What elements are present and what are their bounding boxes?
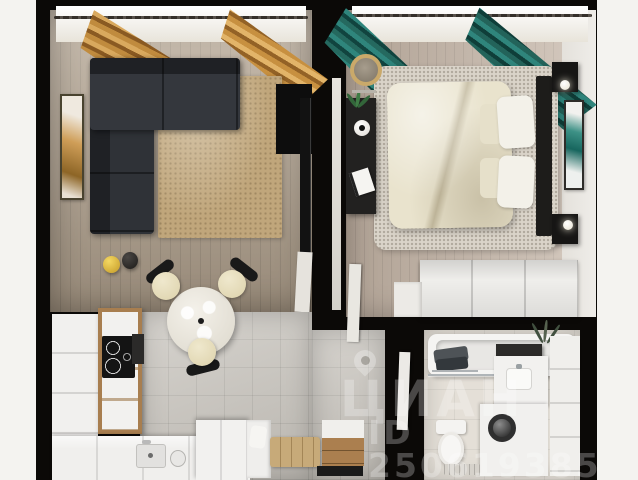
shoe-cabinet-top [322, 420, 364, 438]
right-margin [597, 0, 638, 480]
bathroom-shelf [496, 344, 542, 356]
bedroom-wall-art [564, 100, 584, 190]
bedroom-wardrobe [420, 260, 578, 317]
living-room-door [294, 252, 312, 313]
table-centerpiece [198, 318, 204, 324]
round-mirror [350, 54, 382, 86]
bed-headboard [536, 76, 552, 236]
bed-pillow [497, 155, 536, 209]
kitchen-faucet [142, 440, 151, 444]
oven-front [132, 334, 144, 364]
bathroom-storage-column [550, 336, 580, 476]
washing-machine-door [488, 414, 516, 442]
floor-plan-render: ЦИАН ID 250619385 [0, 0, 638, 480]
hall-bench-pillow [249, 425, 268, 449]
bathroom-door [397, 352, 411, 430]
hallway-storage-box [196, 420, 250, 480]
partition-wall-face [332, 78, 341, 310]
corner-sofa-top-arm [90, 58, 240, 130]
dining-chair [188, 338, 216, 366]
shoe-cabinet [322, 438, 364, 466]
hall-bench-cushion [270, 437, 320, 467]
wall-sconce [560, 80, 570, 90]
wardrobe-step [394, 282, 422, 317]
vanity-faucet [516, 364, 522, 369]
left-margin [0, 0, 36, 480]
laundry-unit [480, 404, 548, 476]
floor-drain [444, 464, 480, 475]
glass-shelf [352, 90, 376, 93]
bed-pillow [496, 95, 536, 149]
dining-chair [218, 270, 246, 298]
apartment-plan [36, 0, 597, 480]
yellow-floor-lamp [103, 256, 120, 273]
kettle [170, 450, 186, 467]
toilet-bowl [438, 432, 464, 466]
black-floor-lamp [122, 252, 138, 269]
wall-sconce [563, 220, 573, 230]
sink-drain [148, 453, 153, 458]
induction-cooktop [102, 336, 135, 378]
bedroom-curtain-rod [348, 14, 592, 17]
vanity-sink [506, 368, 532, 390]
vase-opening [359, 125, 365, 131]
bedroom-console-desk [346, 98, 376, 214]
towel-rail [432, 370, 478, 372]
tv-cabinet [300, 98, 311, 266]
dining-chair [152, 272, 180, 300]
shoe-cabinet-front [317, 466, 363, 476]
living-room-wall-art [60, 94, 84, 200]
